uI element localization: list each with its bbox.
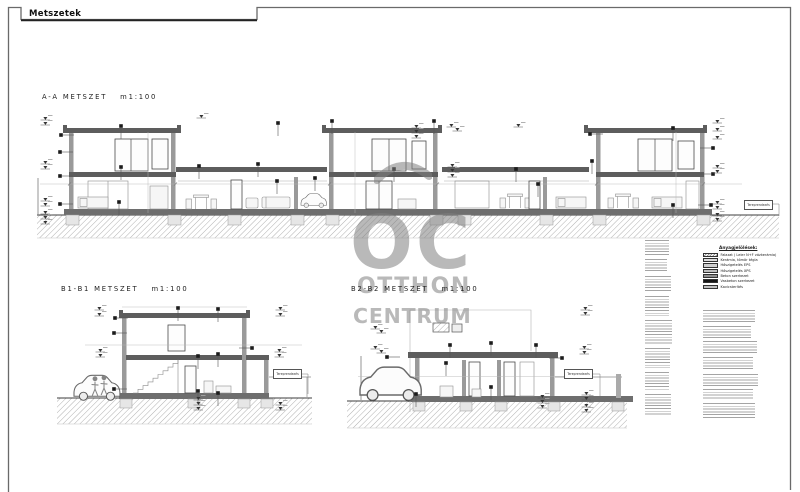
- section-b1-linework: [57, 306, 312, 425]
- section-a-scale: m1:100: [120, 93, 157, 101]
- fine-print-block: [645, 394, 671, 416]
- section-b1-scale: m1:100: [151, 285, 188, 293]
- fine-print-block: [645, 276, 671, 292]
- legend-swatch-gravel: [703, 285, 718, 289]
- roof-swoosh-icon: [374, 152, 432, 186]
- fine-print-block: [703, 357, 753, 371]
- fine-print-block: [703, 374, 758, 386]
- legend: Anyagjelölések: Falazat ( Leier N+F vázk…: [703, 246, 789, 289]
- fine-print-block: [703, 341, 757, 354]
- legend-swatch-brick: [703, 258, 718, 262]
- terrain-tag-b2: Tereprendezés: [564, 369, 593, 379]
- fine-print-block: [703, 326, 751, 338]
- section-b2-label: B2-B2 METSZETm1:100: [351, 285, 479, 293]
- section-b1-label: B1-B1 METSZETm1:100: [61, 285, 189, 293]
- legend-swatch-reinforced-concrete: [703, 279, 718, 283]
- fine-print-block: [645, 320, 672, 344]
- fine-print-block: [645, 296, 669, 316]
- section-a-name: A-A METSZET: [42, 93, 107, 101]
- fine-print-block: [645, 259, 667, 272]
- legend-swatch-xps: [703, 269, 718, 273]
- terrain-tag-a: Tereprendezés: [744, 200, 773, 210]
- fine-print-block: [645, 240, 669, 256]
- drawing-sheet: .fo{fill:#f6f6f6;stroke:#8f8f8f;stroke-w…: [0, 0, 800, 492]
- fine-print-block: [645, 348, 670, 368]
- terrain-tag-b1: Tereprendezés: [273, 369, 302, 379]
- section-b2-scale: m1:100: [441, 285, 478, 293]
- fine-print-block: [703, 310, 755, 323]
- section-b2-name: B2-B2 METSZET: [351, 285, 428, 293]
- legend-swatch-masonry: [703, 253, 718, 257]
- legend-item: Falazat ( Leier N+F vázkerámia): [703, 252, 789, 257]
- fine-print-block: [645, 372, 669, 390]
- watermark-line2: CENTRUM: [353, 306, 472, 327]
- section-a-label: A-A METSZETm1:100: [42, 93, 157, 101]
- section-b1-name: B1-B1 METSZET: [61, 285, 138, 293]
- legend-title: Anyagjelölések:: [719, 246, 789, 251]
- legend-swatch-eps: [703, 263, 718, 267]
- watermark-monogram: OC: [350, 206, 473, 280]
- fine-print-block: [703, 389, 753, 400]
- sheet-title: Metszetek: [29, 9, 81, 19]
- fine-print-block: [703, 403, 755, 418]
- legend-swatch-concrete: [703, 274, 718, 278]
- legend-item: Kavicsterítés: [703, 284, 789, 289]
